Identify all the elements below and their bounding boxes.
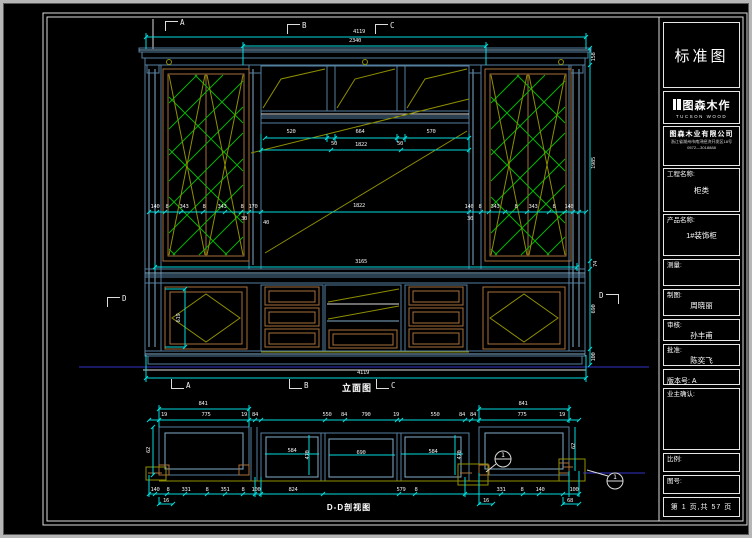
check-value: 孙丰甫 [664,330,739,341]
marker-letter: A [180,18,185,27]
dim-label: 570 [426,129,435,135]
version-box: 版本号: A [663,369,740,385]
marker-letter: B [302,21,307,30]
dim-label: 690 [356,450,365,456]
dim-label: 4119 [357,370,369,376]
dim-label: 19 [393,412,399,418]
dim-label: 470 [305,450,311,459]
dim-label: 8 [202,204,205,210]
dim-label: 1822 [353,203,365,209]
dim-label: 30 [241,216,247,222]
dim-label: 84 [470,412,476,418]
check-box: 审核: 孙丰甫 [663,319,740,341]
dim-label: 2340 [349,38,361,44]
cad-window: 4119 2340 520 664 570 50 1822 50 140 8 3… [0,0,752,538]
marker-bracket-icon [289,379,302,389]
approve-label: 批准: [664,345,739,355]
marker-letter: D [122,294,127,303]
marker-bracket-icon [375,24,388,34]
dim-label: 690 [591,304,597,313]
logo-en-text: TUCSON WOOD [676,114,727,119]
project-label: 工程名称: [664,169,739,179]
dim-label: 16 [163,498,169,504]
marker-bracket-icon [606,294,619,304]
approve-value: 陈奕飞 [664,355,739,366]
dim-label: 40 [263,220,269,226]
dim-label: 50 [397,141,403,147]
marker-bracket-icon [376,379,389,389]
dim-label: 351 [220,487,229,493]
section-linework [146,427,645,489]
dim-label: 520 [286,129,295,135]
dim-label: 841 [518,401,527,407]
version-value: A [692,378,697,385]
dim-label: 8 [205,487,208,493]
dim-label: 100 [251,487,260,493]
section-marker-b-top: B [287,21,307,34]
standard-drawing-box: 标准图 [663,22,740,88]
draft-label: 制图: [664,290,739,300]
marker-bracket-icon [287,24,300,34]
drawing-number-label: 图号: [664,476,739,486]
elevation-title: 立面图 [342,381,372,394]
scale-label: 比例: [664,454,739,464]
standard-drawing-label: 标准图 [674,45,728,66]
page-info: 第 1 页,共 57 页 [671,502,732,512]
dim-label: 584 [428,449,437,455]
project-name-box: 工程名称: 柜类 [663,168,740,212]
dim-label: 3165 [355,259,367,265]
marker-letter: D [599,291,604,300]
dim-label: 62 [146,447,152,453]
dim-label: 1822 [355,142,367,148]
dim-label: 19 [161,412,167,418]
dim-label: 19 [241,412,247,418]
detail-balloon-number: 1 [501,451,505,459]
dim-label: 30 [467,216,473,222]
section-marker-b-bottom: B [289,379,309,390]
marker-bracket-icon [107,297,120,307]
version-line: 版本号: A [664,376,697,385]
dim-label: 8 [241,487,244,493]
marker-letter: A [186,381,191,390]
owner-confirm-box: 业主确认: [663,388,740,450]
dim-label: 100 [591,352,597,361]
dim-label: 343 [528,204,537,210]
dim-label: 8 [166,487,169,493]
company-info-box: 图森木业有限公司 浙江省湖州市南浔经济开发区18号 0572—3018888 [663,126,740,166]
company-address: 浙江省湖州市南浔经济开发区18号 [668,139,736,144]
dim-label: 19 [559,412,565,418]
dim-label: 170 [248,204,257,210]
drawing-number-box: 图号: [663,475,740,494]
dim-label: 470 [457,450,463,459]
dim-label: 50 [331,141,337,147]
dim-label: 4119 [353,29,365,35]
dim-label: 8 [514,204,517,210]
dim-label: 158 [591,52,597,61]
dim-label: 775 [201,412,210,418]
check-label: 审核: [664,320,739,330]
detail-balloon-number: 1 [613,473,617,481]
dim-label: 140 [535,487,544,493]
dim-label: 550 [430,412,439,418]
section-view-title: D-D剖视图 [327,502,371,513]
owner-confirm-label: 业主确认: [664,389,739,399]
dim-label: 824 [288,487,297,493]
dim-label: 68 [567,498,573,504]
draft-box: 制图: 周晓丽 [663,289,740,316]
dim-label: 62 [571,443,577,449]
dim-label: 550 [322,412,331,418]
page-info-box: 第 1 页,共 57 页 [663,497,740,517]
dim-label: 140 [464,204,473,210]
section-marker-a-bottom: A [171,379,191,390]
marker-bracket-icon [171,379,184,389]
company-logo: 图森木作 TUCSON WOOD [663,91,740,124]
dim-label: 8 [520,487,523,493]
dim-label: 84 [341,412,347,418]
version-label: 版本号: [667,378,690,385]
section-marker-c-bottom: C [376,379,396,390]
logo-door-icon [673,99,681,110]
dim-label: 331 [181,487,190,493]
dim-label: 8 [414,487,417,493]
dim-label: 8 [240,204,243,210]
section-marker-a-top: A [165,18,185,31]
measure-box: 测量: [663,259,740,286]
drawing-canvas [3,3,752,538]
product-name-box: 产品名称: 1#装饰柜 [663,214,740,256]
dim-label: 140 [150,204,159,210]
dim-label: 775 [517,412,526,418]
dim-label: 8 [552,204,555,210]
section-marker-d-left: D [107,294,127,307]
dim-label: 584 [287,448,296,454]
dim-label: 841 [198,401,207,407]
marker-bracket-icon [165,21,178,31]
scale-box: 比例: [663,453,740,472]
project-value: 柜类 [664,185,739,196]
dim-label: 343 [217,204,226,210]
dim-label: 343 [179,204,188,210]
marker-letter: C [391,381,396,390]
dim-label: 8 [165,204,168,210]
approve-box: 批准: 陈奕飞 [663,344,740,366]
logo-cn-text: 图森木作 [683,97,731,113]
logo-row: 图森木作 [673,97,731,113]
dim-label: 84 [459,412,465,418]
dim-label: 140 [150,487,159,493]
dim-label: 579 [396,487,405,493]
marker-letter: B [304,381,309,390]
dim-label: 343 [490,204,499,210]
section-marker-d-right: D [599,291,619,304]
company-phone: 0572—3018888 [668,145,736,150]
dim-label: 140 [564,204,573,210]
dim-label: 16 [483,498,489,504]
dim-label: 331 [496,487,505,493]
marker-letter: C [390,21,395,30]
dim-label: 74 [593,261,599,267]
dim-label: 790 [361,412,370,418]
draft-value: 周晓丽 [664,300,739,311]
measure-label: 测量: [664,260,739,270]
dim-label: 619 [176,313,182,322]
dim-label: 1985 [591,157,597,169]
dim-label: 8 [478,204,481,210]
dim-label: 664 [355,129,364,135]
product-label: 产品名称: [664,215,739,225]
dim-label: 100 [569,487,578,493]
dim-label: 84 [252,412,258,418]
company-name: 图森木业有限公司 [664,129,739,139]
section-marker-c-top: C [375,21,395,34]
product-value: 1#装饰柜 [664,230,739,241]
